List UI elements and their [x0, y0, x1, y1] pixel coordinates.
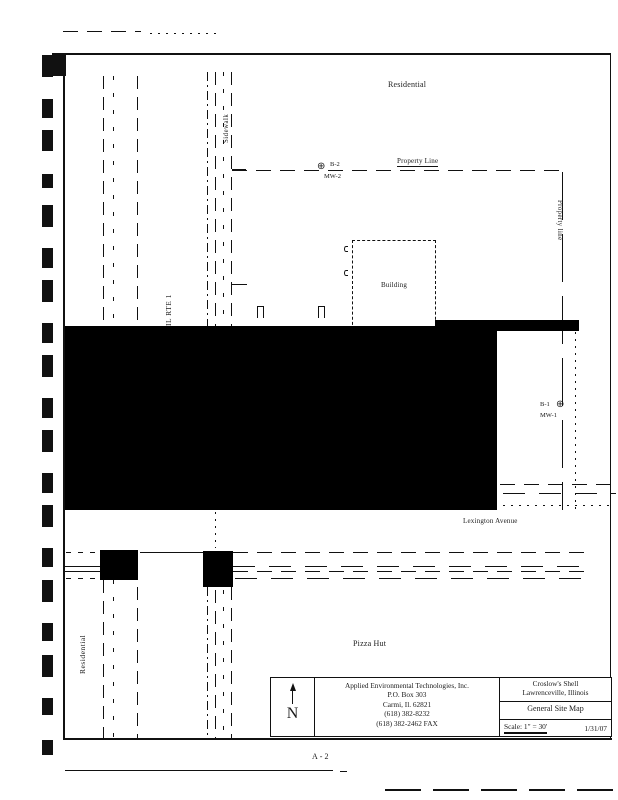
well-label: MW-2	[324, 173, 341, 180]
bottom-rule	[65, 770, 333, 771]
film-sprocket-mark	[42, 174, 53, 188]
frame-border-bottom	[63, 738, 612, 740]
company-name: Applied Environmental Technologies, Inc.	[315, 681, 499, 690]
pump-island-mark	[257, 306, 264, 318]
road-center-line	[113, 580, 114, 738]
sidewalk-label: Sidewalk	[223, 95, 230, 143]
frame-border-top	[52, 53, 611, 55]
boring-label: B-1	[540, 401, 550, 408]
film-sprocket-mark	[42, 473, 53, 493]
company-address1: P.O. Box 303	[315, 690, 499, 699]
property-line-label: Property line	[556, 200, 563, 272]
monitoring-well-icon: ⊕	[556, 400, 564, 410]
monitoring-well-icon: ⊕	[317, 162, 325, 172]
company-fax: (618) 382-2462 FAX	[315, 719, 499, 728]
north-label: N	[271, 705, 314, 723]
road-center-line	[113, 76, 114, 326]
residential-label-left: Residential	[78, 604, 87, 674]
scale-date-cell: Scale: 1" = 30' 1/31/07	[500, 720, 611, 736]
sidewalk-line	[215, 72, 216, 326]
residential-label-top: Residential	[388, 80, 426, 89]
pump-island-mark	[318, 306, 325, 318]
road-edge-line	[137, 76, 138, 326]
sidewalk-line	[231, 72, 232, 326]
film-sprocket-mark	[42, 430, 53, 452]
client-location: Lawrenceville, Illinois	[500, 688, 611, 697]
film-sprocket-mark	[42, 248, 53, 268]
sidewalk-line	[215, 590, 216, 738]
redaction-square	[203, 551, 233, 587]
road-edge-line	[66, 552, 100, 553]
road-edge-line	[65, 571, 100, 572]
film-sprocket-mark	[42, 655, 53, 677]
company-phone: (618) 382-8232	[315, 709, 499, 718]
scan-artifact-dash	[340, 771, 347, 772]
film-sprocket-mark	[42, 355, 53, 377]
road-edge-line	[503, 505, 615, 506]
drawing-date: 1/31/07	[584, 724, 607, 733]
sheet-number: A-2	[312, 752, 330, 761]
film-sprocket-mark	[42, 99, 53, 118]
sidewalk-line	[207, 587, 208, 738]
lexington-avenue-label: Lexington Avenue	[463, 517, 518, 525]
building-outline: Building	[352, 240, 436, 330]
drawing-title: General Site Map	[500, 702, 611, 720]
film-sprocket-mark	[42, 205, 53, 227]
road-edge-line	[233, 552, 590, 553]
il-rte-1-label: IL RTE 1	[164, 268, 173, 326]
north-arrow-cell: N	[271, 678, 315, 736]
survey-mark	[344, 270, 348, 276]
redaction-square	[100, 550, 138, 580]
pizza-hut-label: Pizza Hut	[353, 639, 386, 648]
road-edge-line	[233, 566, 585, 567]
road-edge-line	[137, 587, 138, 738]
film-sprocket-mark	[42, 505, 53, 527]
road-edge-line	[235, 578, 585, 579]
north-arrow-icon	[271, 683, 314, 704]
scan-artifact-dashes	[63, 31, 141, 32]
survey-mark	[344, 246, 348, 252]
sidewalk-line	[223, 590, 224, 738]
project-info-cell: Croslow's Shell Lawrenceville, Illinois …	[500, 678, 611, 736]
property-line-north	[232, 170, 560, 171]
redaction-block	[65, 326, 497, 510]
sidewalk-line	[207, 72, 208, 326]
road-edge-line	[103, 580, 104, 738]
film-sprocket-mark	[42, 130, 53, 151]
road-edge-line	[500, 484, 614, 485]
building-label: Building	[381, 281, 407, 289]
curb-tick	[232, 284, 247, 285]
road-edge-line	[503, 493, 616, 494]
film-sprocket-mark	[42, 740, 53, 755]
scan-artifact-dots	[150, 33, 218, 34]
property-line-label: Property Line	[397, 157, 438, 167]
sidewalk-line	[231, 587, 232, 738]
road-edge-line	[233, 571, 585, 572]
film-sprocket-mark	[42, 398, 53, 418]
client-name: Croslow's Shell	[500, 679, 611, 688]
film-sprocket-mark	[42, 580, 53, 602]
film-sprocket-mark	[42, 323, 53, 343]
film-sprocket-mark	[42, 623, 53, 641]
scan-artifact-dashes	[385, 789, 615, 791]
road-edge-line	[65, 566, 100, 567]
title-block: N Applied Environmental Technologies, In…	[270, 677, 612, 737]
film-sprocket-mark	[42, 698, 53, 715]
frame-corner-mark	[52, 54, 66, 76]
film-sprocket-mark	[42, 280, 53, 302]
sidewalk-line	[215, 512, 216, 548]
boring-label: B-2	[330, 161, 340, 168]
road-edge-line	[140, 552, 203, 553]
project-client-cell: Croslow's Shell Lawrenceville, Illinois	[500, 678, 611, 702]
scanned-site-map-page: Property Line ⊕ B-2 MW-2 Property line B…	[0, 0, 618, 800]
film-sprocket-mark	[42, 548, 53, 567]
well-label: MW-1	[540, 412, 557, 419]
road-edge-line	[103, 76, 104, 326]
company-address2: Carmi, Il. 62821	[315, 700, 499, 709]
redaction-bar	[435, 320, 579, 331]
frame-border-right	[610, 53, 611, 740]
company-info-cell: Applied Environmental Technologies, Inc.…	[315, 678, 500, 736]
road-edge-line	[66, 578, 98, 579]
scale-value: Scale: 1" = 30'	[504, 722, 547, 734]
